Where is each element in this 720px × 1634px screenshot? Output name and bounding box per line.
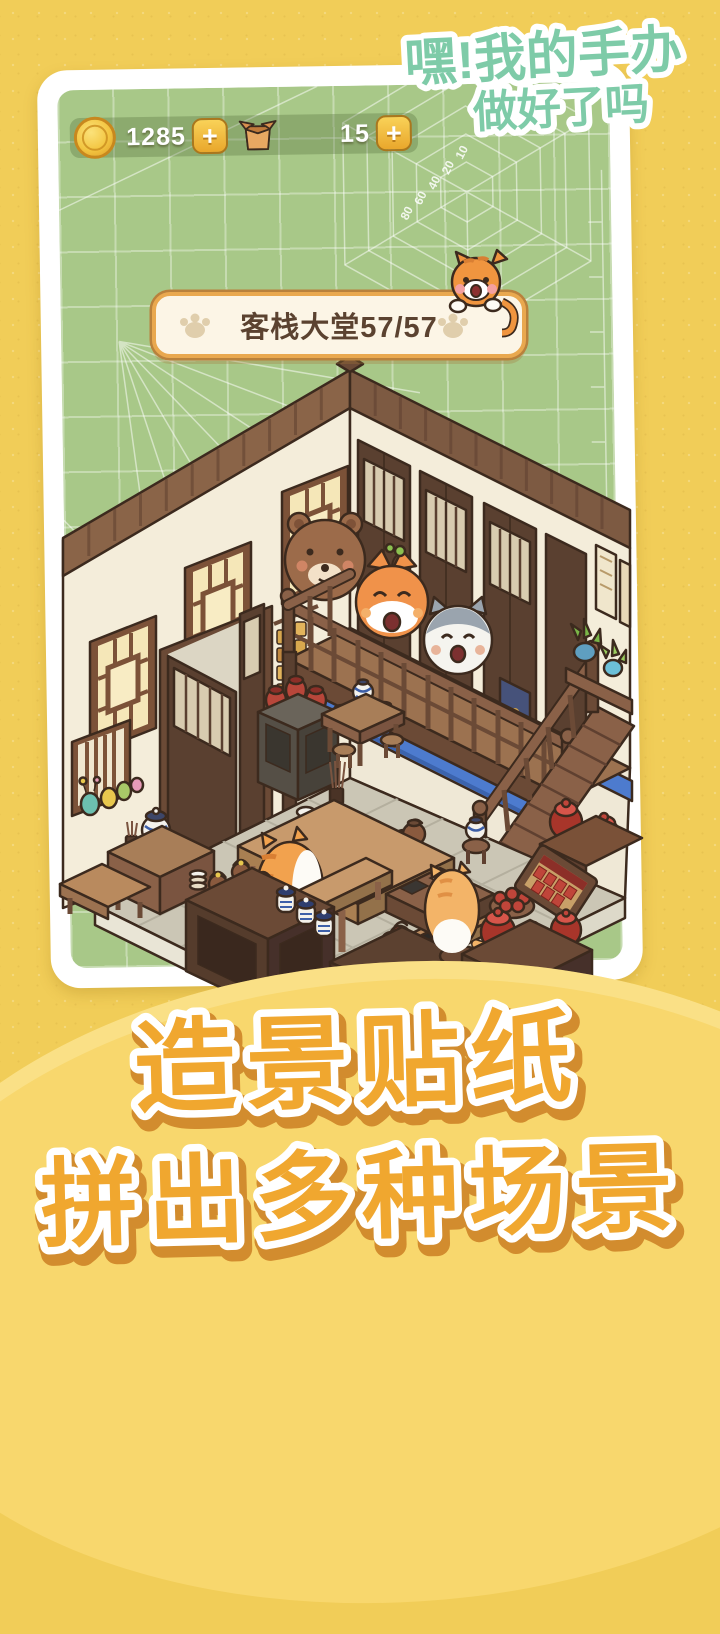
- mat-scale-60: 60: [411, 189, 430, 208]
- coin-plus-button[interactable]: +: [192, 118, 229, 155]
- scene-banner: 客栈大堂57/57: [152, 292, 526, 358]
- peeking-cat-icon: [430, 244, 534, 340]
- cutting-mat-markings: 80 60 40 20 10: [57, 82, 623, 969]
- box-icon: [238, 117, 279, 154]
- coin-icon: [74, 116, 117, 159]
- game-title: 嘿!我的手办 做好了吗: [360, 8, 720, 168]
- slogan-line2: 拼出多种场景: [39, 1134, 684, 1260]
- craft-mat-card: 80 60 40 20 10 1285 +: [37, 61, 643, 988]
- plus-icon: +: [202, 122, 218, 149]
- coin-value: 1285: [122, 122, 186, 152]
- footer-slogan: 造景贴纸 造景贴纸 拼出多种场景 拼出多种场景: [0, 990, 720, 1280]
- paw-print-icon: [178, 311, 212, 339]
- scene-title: 客栈大堂57/57: [240, 304, 438, 346]
- mat-scale-80: 80: [397, 204, 416, 223]
- slogan-line1: 造景贴纸: [133, 1000, 584, 1126]
- game-title-line2: 做好了吗: [471, 80, 650, 138]
- game-promo-screenshot: 80 60 40 20 10 1285 +: [0, 0, 720, 1280]
- cutting-mat: 80 60 40 20 10 1285 +: [57, 82, 623, 969]
